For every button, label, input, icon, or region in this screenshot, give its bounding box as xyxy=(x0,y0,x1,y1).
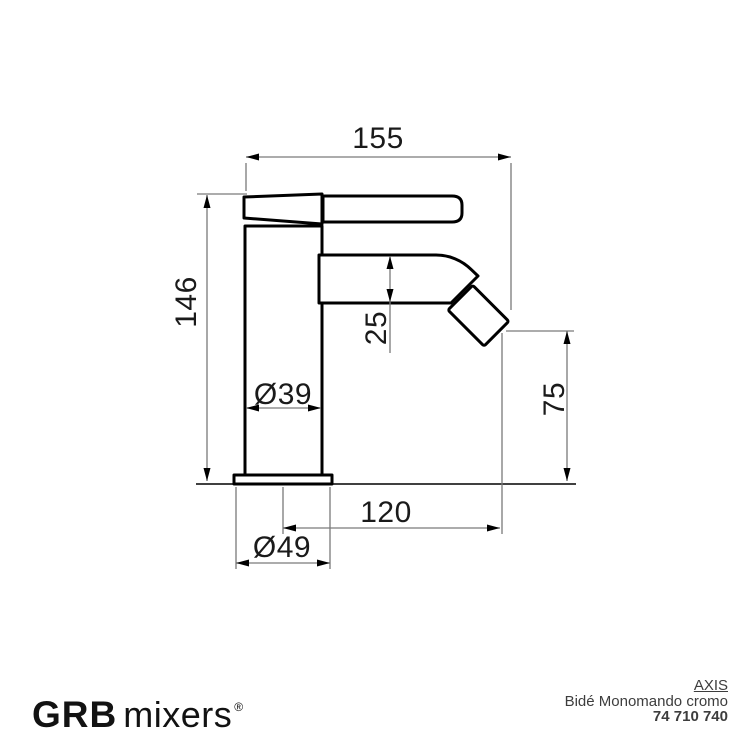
handle-lever-outline xyxy=(323,196,462,222)
arrowhead xyxy=(204,195,211,208)
dimension-75: 75 xyxy=(506,331,574,481)
dimension-label-120: 120 xyxy=(360,496,412,529)
dimension-label-39: Ø39 xyxy=(254,378,312,411)
dimension-label-49: Ø49 xyxy=(253,531,311,564)
arrowhead xyxy=(317,560,330,567)
dimension-label-25: 25 xyxy=(360,311,393,345)
arrowhead xyxy=(236,560,249,567)
arrowhead xyxy=(498,154,511,161)
brand-logo-mixers: mixers xyxy=(123,694,232,736)
product-series: AXIS xyxy=(565,678,728,694)
dimension-label-155: 155 xyxy=(352,122,404,155)
arrowhead xyxy=(204,468,211,481)
arrowhead xyxy=(564,468,571,481)
brand-logo-grb: GRB xyxy=(32,694,117,736)
arrowhead xyxy=(487,525,500,532)
handle-cap-outline xyxy=(244,194,322,224)
technical-drawing: 155 146 25 Ø39 xyxy=(0,0,750,750)
arrowhead xyxy=(246,154,259,161)
dimension-39: Ø39 xyxy=(246,378,321,412)
spout-outline xyxy=(319,255,478,303)
dimension-label-75: 75 xyxy=(538,382,571,416)
arrowhead xyxy=(564,331,571,344)
registered-trademark-symbol: ® xyxy=(234,700,243,714)
product-code: 74 710 740 xyxy=(565,709,728,725)
brand-logo: GRB mixers ® xyxy=(32,694,243,736)
faucet-base-flange xyxy=(234,475,332,484)
product-name: Bidé Monomando cromo xyxy=(565,694,728,710)
product-info: AXIS Bidé Monomando cromo 74 710 740 xyxy=(565,678,728,725)
faucet-body-outline xyxy=(245,226,322,475)
dimension-146: 146 xyxy=(170,194,247,481)
dimension-label-146: 146 xyxy=(170,276,203,328)
spec-sheet-page: 155 146 25 Ø39 xyxy=(0,0,750,750)
